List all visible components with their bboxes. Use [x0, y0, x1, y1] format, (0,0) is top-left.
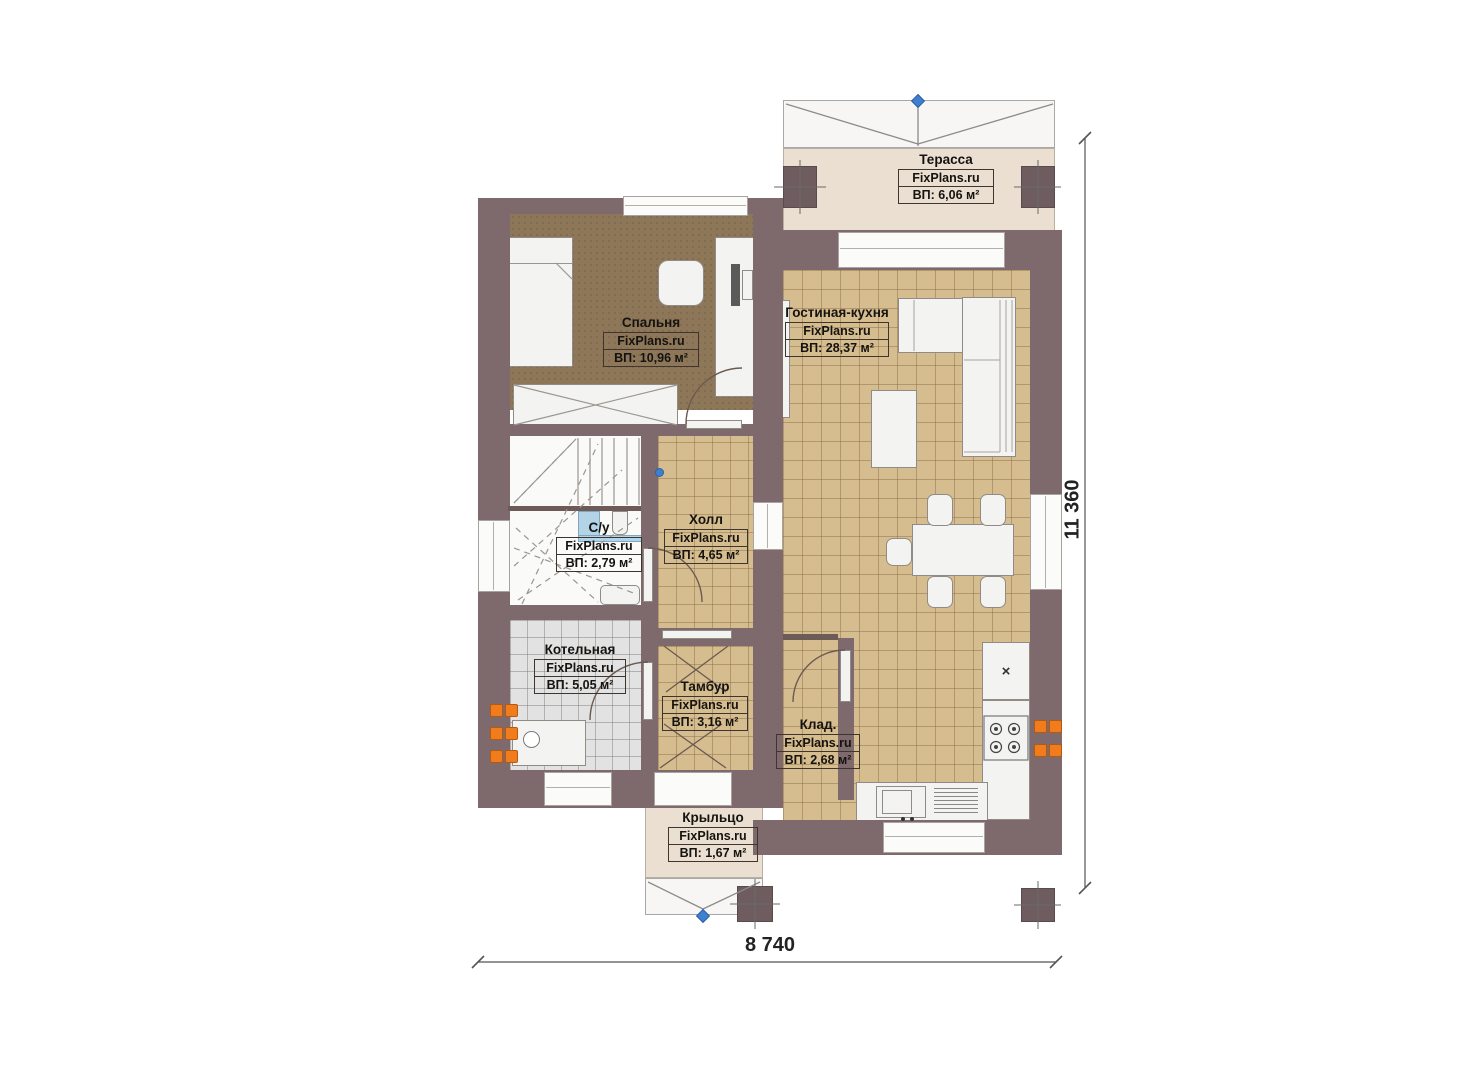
dining-chair-4 — [980, 576, 1006, 608]
room-brand: FixPlans.ru — [899, 170, 993, 186]
room-area: ВП: 10,96 м² — [604, 349, 698, 366]
hall-utility-marker — [655, 468, 664, 477]
room-box-vestibule: FixPlans.ru ВП: 3,16 м² — [662, 696, 748, 731]
room-brand: FixPlans.ru — [535, 660, 625, 676]
vestibule-door-leaf — [662, 630, 732, 639]
room-area: ВП: 5,05 м² — [535, 676, 625, 693]
floor-plan-canvas: × — [0, 0, 1474, 1080]
room-box-boiler-room: FixPlans.ru ВП: 5,05 м² — [534, 659, 626, 694]
room-area: ВП: 2,68 м² — [777, 751, 859, 768]
boiler-door-leaf — [643, 662, 653, 720]
room-brand: FixPlans.ru — [663, 697, 747, 713]
room-brand: FixPlans.ru — [557, 538, 641, 554]
room-name-terrace: Терасса — [898, 152, 994, 167]
terrace-pillar-right — [1021, 166, 1055, 208]
bathroom-window-left — [478, 520, 510, 592]
room-area: ВП: 2,79 м² — [557, 554, 641, 571]
dining-chair-1 — [927, 494, 953, 526]
label-living-kitchen: Гостиная-кухня FixPlans.ru ВП: 28,37 м² — [785, 305, 889, 357]
bath-sink — [600, 585, 640, 605]
room-box-storage: FixPlans.ru ВП: 2,68 м² — [776, 734, 860, 769]
dining-chair-2 — [980, 494, 1006, 526]
desk-keyboard — [742, 270, 753, 300]
room-area: ВП: 1,67 м² — [669, 844, 757, 861]
room-box-bathroom: FixPlans.ru ВП: 2,79 м² — [556, 537, 642, 572]
front-door-opening — [654, 772, 732, 806]
label-boiler-room: Котельная FixPlans.ru ВП: 5,05 м² — [534, 642, 626, 694]
wall-bottom-left — [478, 770, 783, 808]
stair-floor — [510, 436, 641, 506]
monitor — [731, 264, 740, 306]
porch-pillar — [737, 886, 773, 922]
label-hall: Холл FixPlans.ru ВП: 4,65 м² — [664, 512, 748, 564]
terrace-pillar-left — [783, 166, 817, 208]
label-vestibule: Тамбур FixPlans.ru ВП: 3,16 м² — [662, 679, 748, 731]
dish-rack — [934, 788, 978, 816]
coffee-table — [871, 390, 917, 468]
label-terrace: Терасса FixPlans.ru ВП: 6,06 м² — [898, 152, 994, 204]
desk — [715, 237, 755, 397]
room-box-living-kitchen: FixPlans.ru ВП: 28,37 м² — [785, 322, 889, 357]
room-box-terrace: FixPlans.ru ВП: 6,06 м² — [898, 169, 994, 204]
radiator-boiler-1 — [490, 704, 518, 717]
boiler-window-bottom — [544, 772, 612, 806]
dimension-bottom-label: 8 740 — [730, 934, 810, 957]
radiator-kitchen-1 — [1034, 720, 1062, 733]
room-area: ВП: 3,16 м² — [663, 713, 747, 730]
dining-chair-end — [886, 538, 912, 566]
radiator-boiler-2 — [490, 727, 518, 740]
fridge: × — [982, 642, 1030, 700]
dimension-right-label: 11 360 — [1062, 465, 1085, 555]
room-box-porch: FixPlans.ru ВП: 1,67 м² — [668, 827, 758, 862]
sofa-vertical — [962, 297, 1016, 457]
room-name-bathroom: С/у — [556, 520, 642, 535]
kitchen-counter-right — [982, 700, 1030, 820]
radiator-kitchen-2 — [1034, 744, 1062, 757]
room-box-hall: FixPlans.ru ВП: 4,65 м² — [664, 529, 748, 564]
bathroom-door-leaf — [643, 548, 653, 602]
boiler-unit — [523, 731, 540, 748]
label-bedroom: Спальня FixPlans.ru ВП: 10,96 м² — [603, 315, 699, 367]
label-porch: Крыльцо FixPlans.ru ВП: 1,67 м² — [668, 810, 758, 862]
desk-chair — [658, 260, 704, 306]
kitchen-sink-bowl — [882, 790, 912, 814]
terrace-door-window — [838, 232, 1005, 268]
hall-living-opening — [753, 502, 783, 550]
wall-bath-north — [508, 506, 641, 511]
terrace-steps — [783, 100, 1055, 148]
bedroom-door-leaf — [686, 420, 742, 429]
room-brand: FixPlans.ru — [669, 828, 757, 844]
room-name-vestibule: Тамбур — [662, 679, 748, 694]
room-area: ВП: 28,37 м² — [786, 339, 888, 356]
bed-pillow-line — [506, 263, 572, 264]
room-name-bedroom: Спальня — [603, 315, 699, 330]
label-storage: Клад. FixPlans.ru ВП: 2,68 м² — [776, 717, 860, 769]
label-bathroom: С/у FixPlans.ru ВП: 2,79 м² — [556, 520, 642, 572]
room-area: ВП: 6,06 м² — [899, 186, 993, 203]
storage-door-leaf — [840, 650, 851, 702]
room-brand: FixPlans.ru — [665, 530, 747, 546]
dining-chair-3 — [927, 576, 953, 608]
living-window-right — [1030, 494, 1062, 590]
corner-pillar-bottom-right — [1021, 888, 1055, 922]
bed — [505, 237, 573, 367]
kitchen-window-bottom — [883, 822, 985, 853]
room-brand: FixPlans.ru — [604, 333, 698, 349]
room-box-bedroom: FixPlans.ru ВП: 10,96 м² — [603, 332, 699, 367]
wall-boiler-north — [478, 605, 658, 620]
dining-table — [912, 524, 1014, 576]
wall-storage-north — [783, 634, 838, 640]
room-brand: FixPlans.ru — [777, 735, 859, 751]
room-name-hall: Холл — [664, 512, 748, 527]
radiator-boiler-3 — [490, 750, 518, 763]
room-brand: FixPlans.ru — [786, 323, 888, 339]
room-area: ВП: 4,65 м² — [665, 546, 747, 563]
room-name-living-kitchen: Гостиная-кухня — [785, 305, 889, 320]
bedroom-window — [623, 196, 748, 216]
wardrobe — [513, 384, 678, 426]
room-name-storage: Клад. — [776, 717, 860, 732]
room-name-porch: Крыльцо — [668, 810, 758, 825]
room-name-boiler-room: Котельная — [534, 642, 626, 657]
